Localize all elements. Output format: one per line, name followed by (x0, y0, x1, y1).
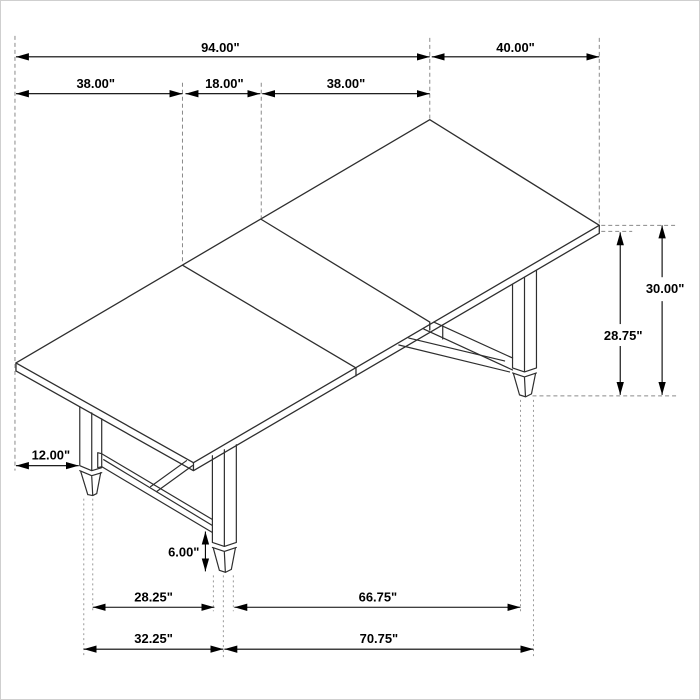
dim-label-left-section: 38.00" (76, 76, 115, 91)
dim-center-leaf: 18.00" (185, 76, 260, 94)
dimension-drawing-canvas: 94.00" 40.00" 38.00" 18.00" 38.00" 12.00… (0, 0, 700, 700)
crossbar-left-assembly (98, 453, 213, 533)
dim-label-right-section: 38.00" (327, 76, 366, 91)
dim-label-overall-length: 94.00" (201, 40, 240, 55)
crossbar-right-assembly (424, 322, 513, 370)
leaf-seam-left (182, 265, 356, 376)
table-dimension-diagram: 94.00" 40.00" 38.00" 18.00" 38.00" 12.00… (1, 1, 699, 699)
leg-back-left (80, 407, 102, 496)
dim-base-gap-outer: 32.25" (84, 631, 224, 649)
dim-label-base-span-inner: 66.75" (359, 589, 398, 604)
dim-base-span-inner: 66.75" (234, 589, 520, 607)
dim-right-section: 38.00" (262, 76, 430, 94)
dim-label-base-gap-inner: 28.25" (134, 589, 173, 604)
dim-foot-height: 6.00" (168, 531, 205, 571)
dimensions: 94.00" 40.00" 38.00" 18.00" 38.00" 12.00… (16, 40, 684, 649)
table-drawing (16, 120, 599, 573)
dim-label-center-leaf: 18.00" (205, 76, 244, 91)
leaf-seam-right (261, 219, 430, 330)
dim-base-gap-inner: 28.25" (93, 589, 215, 607)
dim-label-base-span-outer: 70.75" (360, 631, 399, 646)
tabletop-slab-edge (16, 225, 599, 470)
dim-label-foot-height: 6.00" (168, 544, 199, 559)
leg-back-right (513, 270, 537, 397)
dim-label-overall-height: 30.00" (646, 281, 685, 296)
leg-front-center (212, 445, 236, 573)
dim-label-clearance-height: 28.75" (604, 328, 643, 343)
tabletop-top-face (16, 120, 599, 463)
dim-base-span-outer: 70.75" (224, 631, 533, 649)
dim-left-section: 38.00" (16, 76, 183, 94)
dim-label-base-gap-outer: 32.25" (134, 631, 173, 646)
dim-clearance-height: 28.75" (604, 232, 643, 395)
dim-overall-width: 40.00" (432, 40, 600, 57)
dim-overall-height: 30.00" (646, 225, 685, 395)
extension-lines (15, 36, 677, 657)
dim-label-overall-width: 40.00" (496, 40, 535, 55)
dim-leg-inset: 12.00" (16, 448, 79, 466)
dim-label-leg-inset: 12.00" (32, 448, 71, 463)
dim-overall-length: 94.00" (16, 40, 430, 57)
